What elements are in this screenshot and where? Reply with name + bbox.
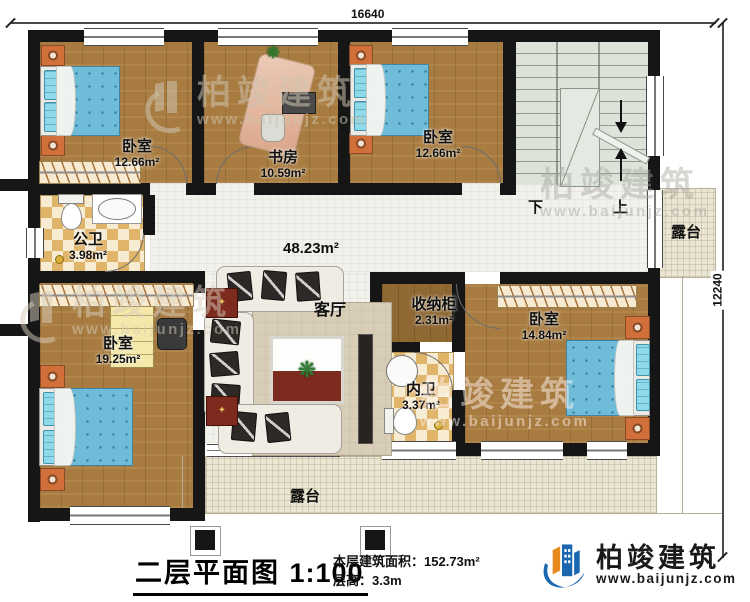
wall-south-2 [456, 443, 481, 456]
label-living-room: 客厅 [314, 296, 346, 320]
wardrobe [497, 285, 637, 308]
nightstand [349, 45, 373, 66]
sofa-cushion [210, 319, 241, 346]
brand-logo: 柏竣建筑 www.baijunjz.com [534, 537, 737, 593]
wall-bedbl-north [28, 271, 205, 283]
window-stairs [646, 76, 664, 156]
wall-storage-north [370, 272, 456, 284]
bed-pillow [636, 379, 650, 411]
wall-bedr-north [500, 272, 648, 284]
wall-south-3 [563, 443, 587, 456]
nightstand [625, 417, 650, 440]
stair-flight-separator-1 [556, 42, 558, 185]
study-desk [282, 92, 316, 114]
brand-logo-icon [534, 537, 590, 593]
label-bedroom-top-left: 卧室 12.66m² [87, 139, 187, 169]
bed-sheet-fold [54, 388, 76, 466]
window-south-1 [382, 441, 456, 460]
terrace-right-door [647, 190, 663, 268]
plan-title-text: 二层平面图 [135, 558, 280, 588]
stair-arrow-down-icon [615, 122, 627, 133]
plant-icon: ❋ [266, 44, 280, 61]
terrace-bottom-floor [205, 456, 657, 514]
wall-right-1 [648, 30, 660, 76]
wall-study-south-right [254, 183, 350, 195]
stair-arrow-stem-1 [620, 100, 622, 122]
stair-landing [560, 88, 600, 187]
wardrobe [39, 284, 194, 307]
label-inner-bathroom: 内卫 3.37m² [371, 382, 471, 412]
wall-bedbl-south-right [165, 508, 205, 521]
nightstand [41, 135, 65, 156]
bed-sheet-fold [366, 64, 386, 136]
wall-right-2 [648, 156, 660, 190]
wall-stair-south-jamb [500, 183, 516, 195]
nightstand [40, 468, 65, 491]
window-south-2 [481, 441, 563, 460]
wall-bedbl-east-top [193, 283, 205, 293]
label-bedroom-top-right: 卧室 12.66m² [388, 130, 488, 160]
window-bedroom-top-left [84, 28, 164, 46]
plan-info: 本层建筑面积：152.73m² 层高：3.3m [333, 553, 480, 591]
hall-floor [150, 183, 648, 272]
sofa-cushion [261, 270, 287, 301]
sink [98, 198, 136, 220]
floor-plan: 下 上 ❋ ✦ ✦ ❋ [0, 0, 750, 602]
label-bedroom-right: 卧室 14.84m² [494, 312, 594, 342]
label-study: 书房 10.59m² [233, 150, 333, 180]
label-terrace-right: 露台 [671, 221, 701, 242]
label-bedroom-bottom-left: 卧室 19.25m² [68, 336, 168, 366]
stair-down-label: 下 [528, 196, 543, 217]
stair-up-label: 上 [613, 196, 628, 217]
nightstand [625, 316, 650, 339]
stair-arrow-up-icon [615, 148, 627, 159]
dimension-top-label: 16640 [348, 7, 387, 21]
label-public-bathroom: 公卫 3.98m² [38, 232, 138, 262]
study-chair [261, 114, 285, 142]
label-terrace-bottom: 露台 [290, 485, 320, 506]
site-line-left [182, 456, 183, 513]
nightstand [41, 45, 65, 66]
brand-name: 柏竣建筑 [596, 544, 737, 572]
plant-icon: ❋ [298, 359, 316, 381]
wall-fin-left-1 [0, 179, 28, 191]
site-line-bottom [182, 513, 722, 514]
wall-study-south-left [186, 183, 216, 195]
window-south-3 [587, 441, 627, 460]
floor-height-line: 层高：3.3m [333, 572, 480, 591]
column-core [195, 530, 215, 550]
bed-pillow [636, 344, 650, 376]
nightstand [349, 133, 373, 154]
bed-sheet-fold [56, 66, 76, 136]
toilet-bowl [61, 203, 82, 230]
wall-pubbath-east [143, 195, 155, 235]
wall-div-bed2-stairs [503, 42, 516, 183]
wall-fin-left-2 [0, 324, 28, 336]
window-bedbl-south [70, 506, 170, 525]
dimension-right-label: 12240 [711, 270, 725, 309]
side-table: ✦ [206, 288, 238, 318]
site-line-right [682, 276, 683, 513]
brand-website: www.baijunjz.com [596, 572, 737, 586]
wall-bedbl-south-left [28, 508, 75, 521]
sofa-cushion [265, 412, 292, 443]
stair-arrow-stem-2 [620, 159, 622, 181]
floor-area-line: 本层建筑面积：152.73m² [333, 553, 480, 572]
label-hall-area: 48.23m² [283, 240, 339, 257]
nightstand [40, 365, 65, 388]
wall-div-bed1-study [192, 42, 204, 183]
side-table: ✦ [206, 396, 238, 426]
bed-sheet-fold [614, 340, 634, 416]
dimension-line-top [10, 22, 716, 24]
window-bedroom-top-right [392, 28, 468, 46]
wall-bed2-south [350, 183, 462, 195]
sofa-cushion [209, 351, 240, 377]
column-core [365, 530, 385, 550]
coffee-table: ❋ [270, 336, 344, 404]
label-storage: 收纳柜 2.31m² [384, 297, 484, 327]
floor-drain [434, 421, 443, 430]
